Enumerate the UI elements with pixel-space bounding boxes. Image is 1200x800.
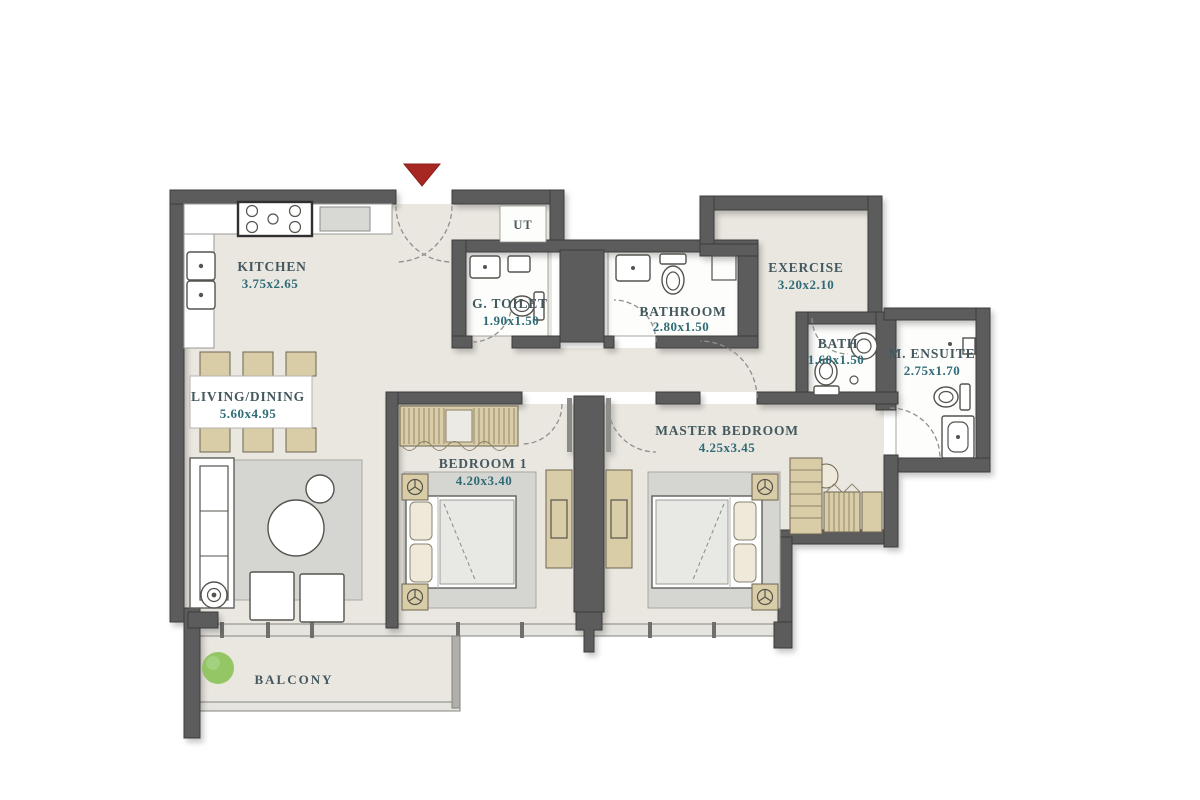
bed-icon	[652, 496, 762, 588]
entry-arrow-icon	[404, 164, 440, 186]
floor-plan-drawing: UT	[0, 0, 1200, 800]
kitchen-sink-icon	[187, 252, 215, 309]
wall-exercise-right	[868, 196, 882, 324]
corner-unit-icon	[402, 584, 428, 610]
wall-master-se-post	[774, 622, 792, 648]
living-room-furniture	[190, 458, 362, 622]
plant-highlight	[206, 656, 220, 670]
room-dims-bathroom: 2.80x1.50	[653, 319, 710, 334]
wall-left-upper	[170, 190, 184, 622]
armchair-icon	[300, 574, 344, 622]
corner-unit-icon	[752, 474, 778, 500]
utility-closet: UT	[500, 206, 546, 242]
balcony-edge	[198, 702, 460, 711]
room-label-bath: BATH	[818, 336, 858, 351]
room-label-kitchen: KITCHEN	[237, 259, 306, 274]
room-label-bedroom-1: BEDROOM 1	[439, 456, 528, 471]
bedroom1-closet-icon	[400, 406, 518, 451]
wall-top-entry-right	[452, 190, 564, 204]
room-dims-bath: 1.60x1.50	[808, 352, 865, 367]
room-label-master-bedroom: MASTER BEDROOM	[655, 423, 799, 438]
sink-icon	[616, 255, 650, 281]
wall-exercise-step	[700, 244, 758, 256]
wall-gtoilet-bottom-l	[452, 336, 472, 348]
room-dims-bedroom-1: 4.20x3.40	[456, 473, 513, 488]
cistern-icon	[508, 256, 530, 272]
floor-lamp-icon	[201, 582, 227, 608]
wall-bathroom-bottom-l	[604, 336, 614, 348]
corner-unit-icon	[752, 584, 778, 610]
wall-bedroom1-top	[386, 392, 522, 404]
corner-unit-icon	[402, 474, 428, 500]
wall-ensuite-bottom	[884, 458, 990, 472]
bed-icon	[406, 496, 516, 588]
dining-chair-icon	[286, 428, 316, 452]
dining-chair-icon	[243, 352, 273, 376]
plant-icon	[202, 652, 234, 684]
wall-master-top-1	[656, 392, 700, 404]
balcony-side-wall	[452, 636, 460, 708]
wall-gtoilet-left	[452, 240, 466, 348]
room-dims-master-bedroom: 4.25x3.45	[699, 440, 756, 455]
wall-living-sw-column	[188, 612, 218, 628]
wall-gtoilet-bottom-r	[512, 336, 560, 348]
wall-ensuite-right	[976, 308, 990, 472]
dining-chair-icon	[200, 352, 230, 376]
floor-plan-page: UT	[0, 0, 1200, 800]
room-label-m-ensuite: M. ENSUITE	[889, 346, 976, 361]
wall-bedroom1-left	[386, 392, 398, 628]
dining-chair-icon	[286, 352, 316, 376]
room-label-balcony: BALCONY	[254, 672, 333, 687]
nightstand-icon	[606, 470, 632, 568]
toilet-icon	[660, 254, 686, 294]
room-label-utility: UT	[513, 218, 532, 232]
nightstand-icon	[546, 470, 572, 568]
side-table-icon	[306, 475, 334, 503]
coffee-table-icon	[268, 500, 324, 556]
wall-exercise-top	[700, 196, 882, 210]
room-dims-m-ensuite: 2.75x1.70	[904, 363, 961, 378]
stove-icon	[238, 202, 312, 236]
room-dims-living-dining: 5.60x4.95	[220, 406, 277, 421]
wall-bath-left	[796, 312, 808, 404]
toilet-icon	[934, 384, 970, 410]
room-dims-kitchen: 3.75x2.65	[242, 276, 299, 291]
room-label-living-dining: LIVING/DINING	[191, 389, 305, 404]
kitchen-appliance-icon	[320, 207, 370, 231]
wall-ensuite-top	[884, 308, 990, 320]
room-dims-exercise: 3.20x2.10	[778, 277, 835, 292]
dining-chair-icon	[200, 428, 230, 452]
dining-chair-icon	[243, 428, 273, 452]
room-label-g-toilet: G. TOILET	[472, 296, 548, 311]
wall-bedroom-divider	[574, 396, 604, 612]
divider-flange-left	[567, 398, 572, 452]
south-window-wall	[198, 624, 778, 636]
room-dims-g-toilet: 1.90x1.50	[483, 313, 540, 328]
shower-tray-icon	[942, 416, 974, 458]
room-label-bathroom: BATHROOM	[639, 304, 726, 319]
room-label-exercise: EXERCISE	[768, 260, 843, 275]
sink-icon	[470, 256, 500, 278]
balcony-items	[202, 652, 234, 684]
wall-duct-shaft	[560, 250, 604, 342]
wall-bath-top	[796, 312, 884, 324]
wall-wardrobe-east	[884, 455, 898, 547]
wall-bathroom-right	[738, 252, 758, 348]
armchair-icon	[250, 572, 294, 620]
